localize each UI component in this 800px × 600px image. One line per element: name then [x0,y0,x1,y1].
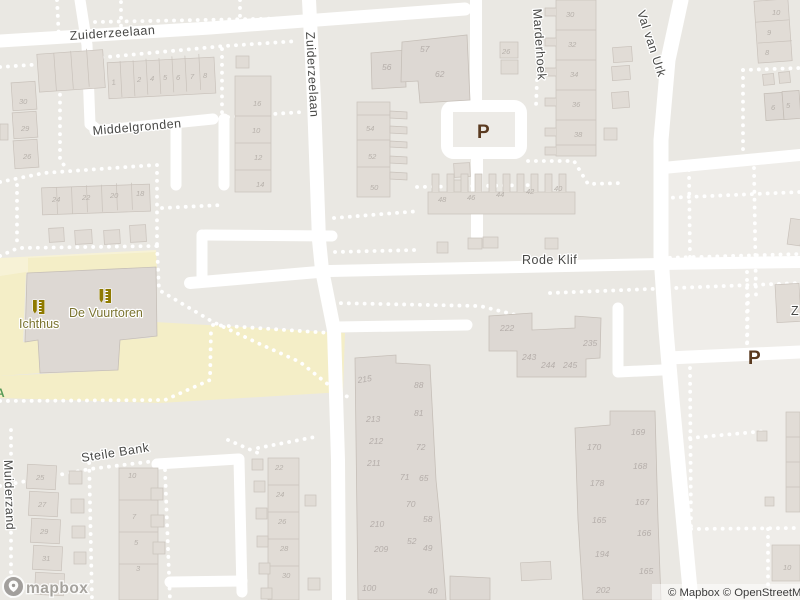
svg-text:24: 24 [275,490,284,499]
svg-text:10: 10 [128,471,137,480]
svg-text:58: 58 [423,514,433,524]
svg-text:31: 31 [42,554,50,563]
svg-text:32: 32 [568,40,577,49]
svg-text:22: 22 [274,463,284,472]
svg-text:166: 166 [637,528,651,538]
svg-text:29: 29 [39,527,49,536]
svg-text:Ichthus: Ichthus [19,317,59,331]
svg-text:244: 244 [540,360,555,370]
svg-text:© Mapbox © OpenStreetMap: © Mapbox © OpenStreetMap [668,587,800,599]
svg-text:168: 168 [633,461,647,471]
svg-text:72: 72 [416,442,426,452]
svg-text:27: 27 [37,500,47,509]
svg-text:178: 178 [590,478,604,488]
svg-text:Rode Klif: Rode Klif [522,253,577,267]
svg-text:10: 10 [783,563,792,572]
svg-text:22: 22 [81,193,91,202]
svg-text:40: 40 [554,184,563,193]
svg-text:215: 215 [356,373,373,385]
svg-text:100: 100 [362,583,376,593]
svg-text:18: 18 [136,189,145,198]
svg-text:44: 44 [496,190,504,199]
svg-text:88: 88 [414,380,424,390]
svg-text:81: 81 [414,408,424,418]
svg-text:26: 26 [277,517,287,526]
svg-text:71: 71 [400,472,410,482]
svg-text:26: 26 [501,47,511,56]
svg-text:P: P [748,348,761,369]
svg-text:12: 12 [254,153,263,162]
svg-text:211: 211 [366,458,381,468]
svg-text:A: A [0,386,5,400]
svg-text:65: 65 [419,473,429,483]
svg-text:46: 46 [467,193,476,202]
svg-text:70: 70 [406,499,416,509]
svg-text:25: 25 [35,473,45,482]
svg-text:14: 14 [256,180,264,189]
svg-text:36: 36 [572,100,581,109]
svg-text:2: 2 [136,75,142,84]
svg-text:30: 30 [282,571,291,580]
svg-text:235: 235 [582,338,597,348]
svg-text:167: 167 [635,497,649,507]
svg-text:213: 213 [365,414,380,424]
svg-text:10: 10 [772,8,781,17]
svg-text:Muiderzand: Muiderzand [1,460,17,531]
svg-text:16: 16 [253,99,262,108]
svg-text:52: 52 [407,536,417,546]
svg-text:56: 56 [382,62,392,72]
svg-text:202: 202 [595,585,610,595]
svg-text:10: 10 [252,126,261,135]
svg-text:48: 48 [438,195,447,204]
svg-text:52: 52 [368,152,377,161]
svg-text:62: 62 [435,69,445,79]
svg-text:29: 29 [20,124,30,133]
svg-text:49: 49 [423,543,433,553]
svg-text:209: 209 [373,544,388,554]
svg-text:165: 165 [592,515,606,525]
svg-text:Z: Z [791,304,799,318]
svg-text:mapbox: mapbox [26,580,88,597]
svg-text:210: 210 [369,519,384,529]
svg-text:57: 57 [420,44,430,54]
svg-text:30: 30 [19,97,28,106]
svg-text:40: 40 [428,586,438,596]
svg-text:24: 24 [51,195,60,204]
svg-text:212: 212 [368,436,383,446]
svg-text:P: P [477,122,490,143]
svg-text:54: 54 [366,124,374,133]
svg-text:243: 243 [521,352,536,362]
svg-text:169: 169 [631,427,645,437]
svg-text:34: 34 [570,70,578,79]
svg-text:De Vuurtoren: De Vuurtoren [69,306,143,320]
svg-text:50: 50 [370,183,379,192]
svg-text:42: 42 [526,187,535,196]
svg-text:38: 38 [574,130,583,139]
svg-text:222: 222 [499,323,514,333]
svg-text:4: 4 [150,74,154,83]
svg-text:30: 30 [566,10,575,19]
svg-text:165: 165 [639,566,653,576]
svg-text:20: 20 [109,191,119,200]
svg-text:26: 26 [22,152,32,161]
svg-text:245: 245 [562,360,577,370]
svg-text:28: 28 [279,544,289,553]
svg-text:170: 170 [587,442,601,452]
svg-text:194: 194 [595,549,609,559]
